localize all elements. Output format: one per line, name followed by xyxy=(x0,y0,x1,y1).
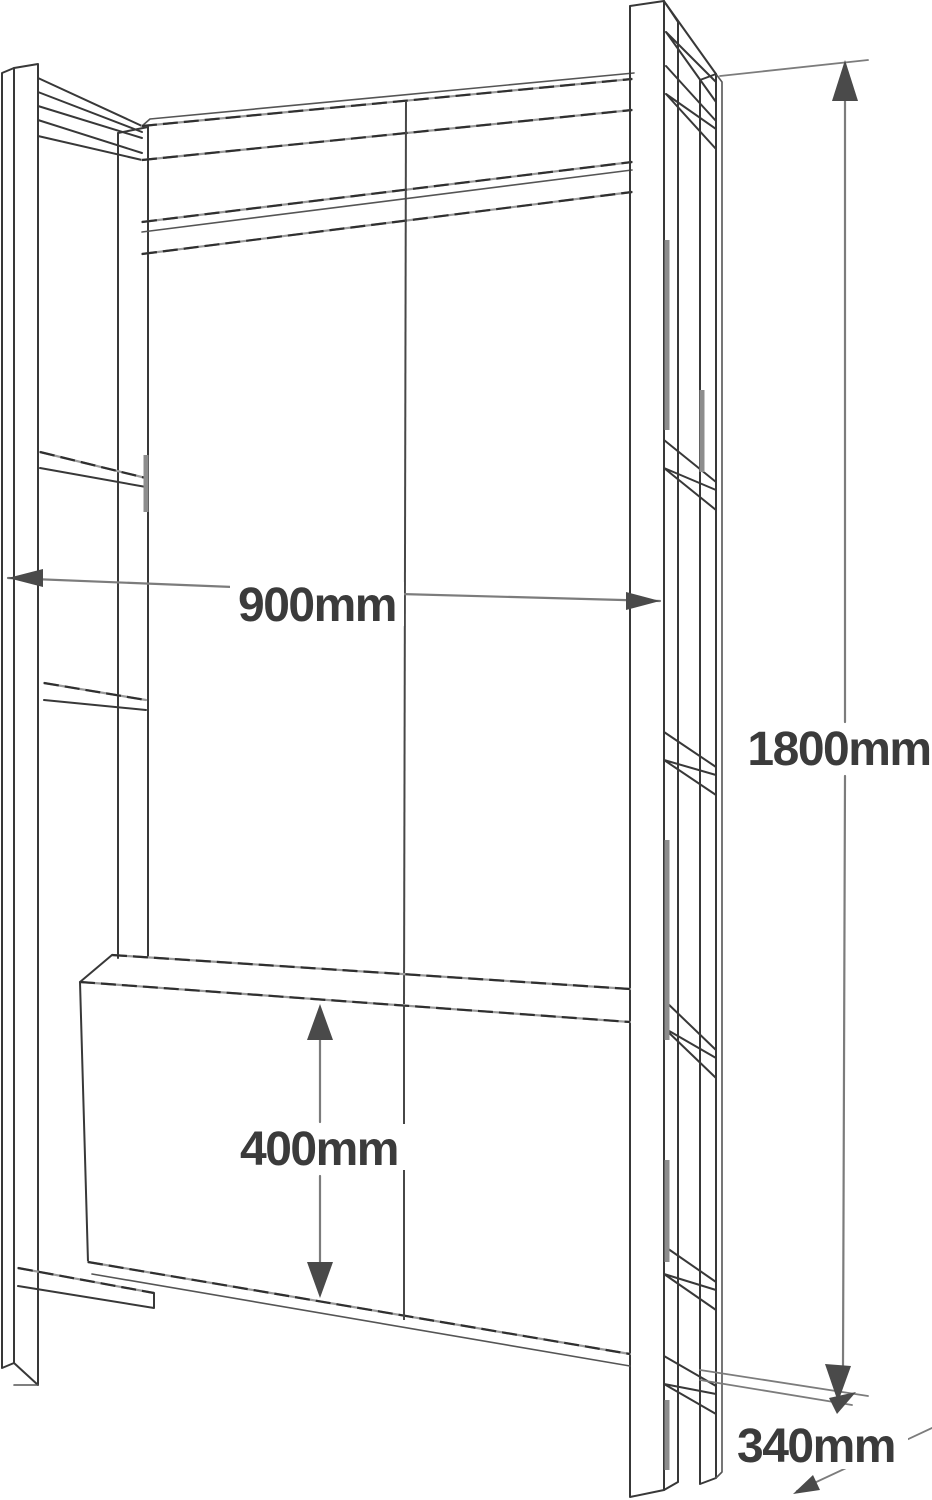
right-rail-cap xyxy=(666,4,716,102)
left-mid-rail-1-bottom xyxy=(40,468,146,487)
left-frame xyxy=(2,64,154,1385)
diagram-canvas: 900mm 1800mm 400mm xyxy=(0,0,932,1500)
left-mid-rail-2-bottom xyxy=(44,700,146,710)
furniture-line-drawing: 900mm 1800mm 400mm xyxy=(0,0,932,1500)
top-rails xyxy=(142,73,634,254)
left-top-rail-1 xyxy=(38,78,142,138)
cabinet-top-left-edge xyxy=(80,955,112,982)
depth-arrow-upper xyxy=(829,1392,856,1414)
cabinet-left-edge xyxy=(80,982,88,1262)
width-arrow-right xyxy=(626,592,660,610)
dimension-label-width: 900mm xyxy=(238,579,396,632)
right-rail-6 xyxy=(664,1246,716,1310)
left-post-front-face xyxy=(14,64,38,1385)
left-back-post xyxy=(118,127,148,958)
cabinet-arrow-bottom xyxy=(307,1262,333,1298)
right-post-front-face xyxy=(630,1,664,1497)
right-rail-4 xyxy=(664,732,716,795)
depth-arrow-lower xyxy=(793,1475,820,1494)
width-dim-line-right xyxy=(400,594,660,601)
dimension-depth: 340mm xyxy=(726,1392,932,1494)
back-panel-seam xyxy=(404,101,406,1004)
right-rail-3 xyxy=(664,440,716,510)
dimension-width: 900mm xyxy=(8,569,660,632)
right-post-side-face xyxy=(664,1,678,1490)
height-arrow-top xyxy=(832,60,858,101)
cabinet-bottom-edge-2 xyxy=(92,1274,630,1366)
right-rail-bottom-cap xyxy=(664,1356,716,1414)
dimension-label-height: 1800mm xyxy=(747,723,930,776)
dimension-label-depth: 340mm xyxy=(737,1420,895,1473)
dimension-label-cabinet-height: 400mm xyxy=(240,1123,398,1176)
dimension-cabinet-height: 400mm xyxy=(232,1004,408,1298)
dimension-height: 1800mm xyxy=(700,60,932,1405)
right-rail-2 xyxy=(666,66,716,149)
height-dim-line-lower xyxy=(843,776,845,1366)
left-post-side-face xyxy=(2,68,14,1368)
right-rail-5 xyxy=(664,1000,716,1078)
cabinet-top-back-edge-dash xyxy=(112,955,630,989)
cabinet-arrow-top xyxy=(307,1004,333,1040)
right-frame xyxy=(630,1,722,1497)
